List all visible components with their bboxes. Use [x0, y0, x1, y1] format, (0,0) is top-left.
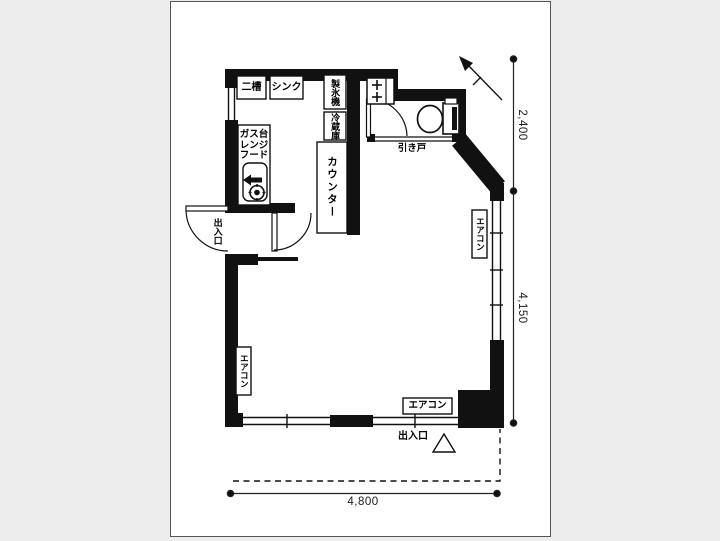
dimension-2400: 2,400 — [514, 105, 528, 145]
toilet-fixture — [418, 98, 460, 134]
label-sink: シンク — [270, 77, 303, 98]
label-gas-range-hood: ガス台 レンジ フード — [240, 128, 268, 164]
label-sliding-door: 引き戸 — [395, 143, 429, 155]
dashed-boundary — [233, 429, 500, 481]
label-entrance-left: 出入口 — [211, 213, 224, 249]
walls — [225, 69, 504, 428]
floorplan-drawing — [0, 0, 720, 541]
label-aircon-right: エアコン — [472, 211, 487, 257]
dimension-lines — [227, 56, 516, 497]
label-ice-maker: 製氷機 — [324, 76, 346, 109]
dimension-4800: 4,800 — [338, 496, 388, 510]
label-aircon-left: エアコン — [236, 348, 251, 394]
hand-wash-sink — [367, 78, 394, 104]
sliding-door-track — [374, 137, 452, 141]
floorplan-image: 二槽 シンク 製氷機 冷蔵庫 カウンター ガス台 レンジ フード 引き戸 出入口… — [0, 0, 720, 541]
label-refrigerator: 冷蔵庫 — [324, 113, 346, 140]
label-gas-line1: ガス台 — [240, 130, 269, 141]
label-counter: カウンター — [317, 143, 347, 232]
dimension-4150: 4,150 — [514, 288, 528, 328]
label-gas-line3: フード — [240, 151, 269, 162]
label-double-sink: 二槽 — [237, 77, 266, 98]
entrance-triangle-marker — [433, 434, 455, 452]
label-entrance-bottom: 出入口 — [397, 431, 429, 443]
label-aircon-bottom: エアコン — [403, 398, 452, 414]
